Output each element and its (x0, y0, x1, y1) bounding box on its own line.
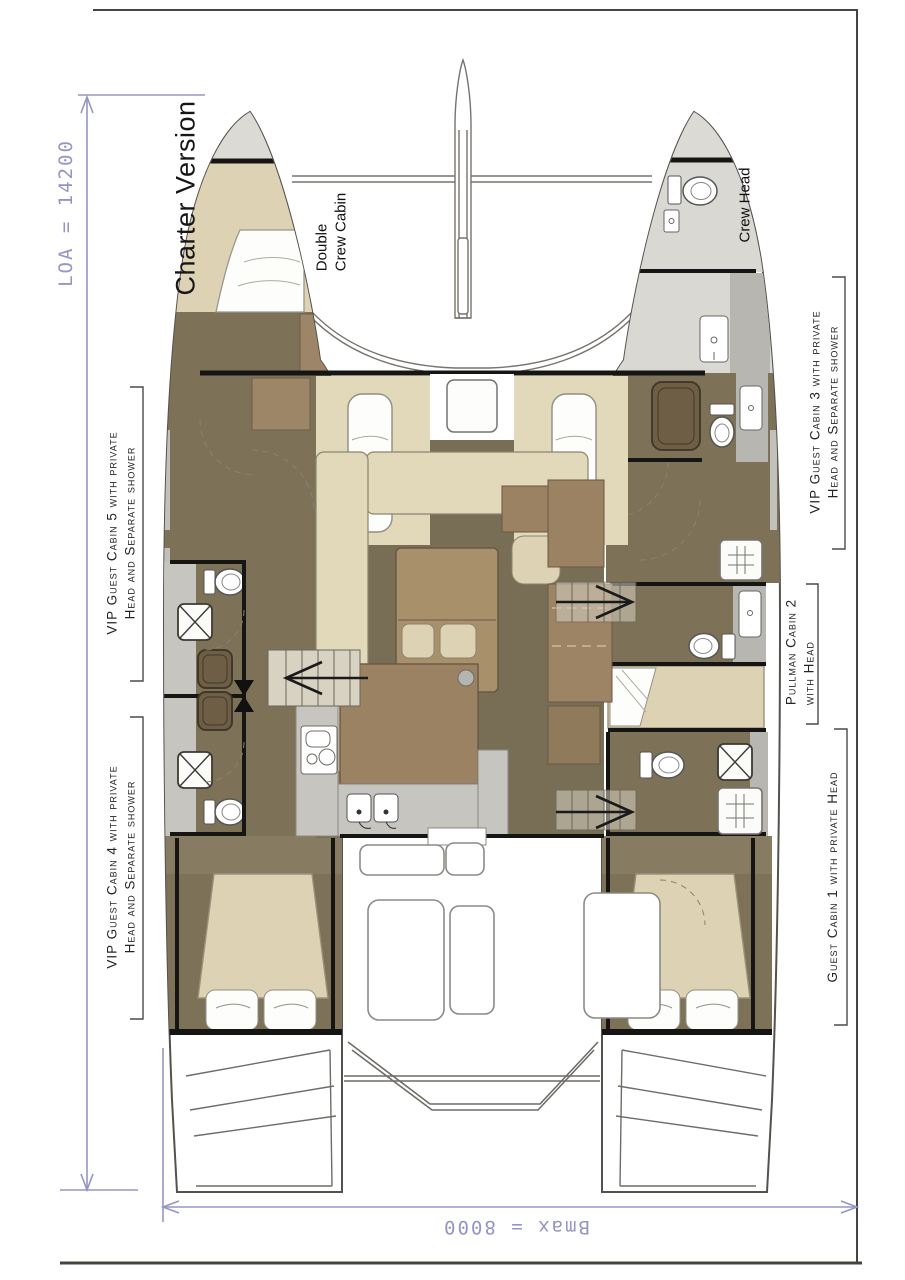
label-cabin-2: Pullman Cabin 2 with Head (782, 599, 817, 705)
galley-fixture (458, 670, 474, 686)
loa-dimension-label: LOA = 14200 (55, 139, 77, 287)
cockpit-bench (450, 906, 494, 1014)
galley-island (340, 664, 478, 784)
cockpit-seat (446, 843, 484, 875)
label-line: Double (313, 193, 332, 271)
cushion (440, 624, 476, 658)
label-cabin-3: VIP Guest Cabin 3 with private Head and … (806, 310, 841, 513)
cabin2-pullman-bed (608, 664, 766, 730)
pillow (264, 990, 316, 1030)
label-line: VIP Guest Cabin 4 with private (103, 765, 121, 968)
label-line: Head and Separate shower (121, 765, 139, 968)
shower-tray-icon (652, 382, 700, 450)
label-line: Pullman Cabin 2 (782, 599, 800, 705)
toilet-icon (204, 570, 215, 594)
toilet-icon (668, 176, 717, 205)
sink-icon (664, 210, 679, 232)
crew-head-floor (594, 160, 784, 272)
label-line: VIP Guest Cabin 3 with private (806, 310, 824, 513)
label-line: with Head (800, 599, 818, 705)
right-hull (594, 108, 784, 1192)
cockpit-seat (360, 845, 444, 875)
stairs-right-aft (556, 790, 636, 830)
cushion (402, 624, 434, 658)
cabin5-cabinet (252, 378, 310, 430)
salon (268, 374, 636, 845)
label-double-crew-cabin: Double Crew Cabin (313, 193, 351, 271)
bowsprit-beam (455, 60, 471, 318)
toilet-icon (710, 404, 734, 415)
toilet-icon (204, 800, 215, 824)
bridle-lines (300, 298, 644, 374)
cabinet (502, 486, 548, 532)
pillow (686, 990, 738, 1030)
foredeck-hatch-icon (447, 380, 497, 432)
shower-icon (178, 604, 212, 640)
pillow (206, 990, 258, 1030)
cockpit-aft-edge (344, 1042, 600, 1110)
cabin4-bed (198, 874, 328, 998)
label-cabin-4: VIP Guest Cabin 4 with private Head and … (103, 765, 138, 968)
label-line: VIP Guest Cabin 5 with private (103, 431, 121, 634)
right-bow-locker (594, 108, 784, 160)
shower-icon (718, 744, 752, 780)
boat-plan-svg (0, 0, 905, 1280)
bmax-dimension-label: Bmax = 8000 (442, 1216, 590, 1238)
cabinet (548, 706, 600, 764)
stairs-left (268, 650, 368, 706)
label-line: Crew Cabin (332, 193, 351, 271)
toilet-icon (640, 752, 652, 778)
shower-icon (178, 752, 212, 788)
label-line: Head and Separate shower (824, 310, 842, 513)
stairs-right-forward (556, 582, 636, 622)
stove-icon (301, 726, 337, 774)
sink-icon (739, 591, 761, 637)
label-cabin-5: VIP Guest Cabin 5 with private Head and … (103, 431, 138, 634)
label-cabin-1: Guest Cabin 1 with private Head (824, 772, 842, 983)
cabinet (548, 480, 604, 567)
drawing-title: Charter Version (171, 100, 202, 295)
label-crew-head: Crew Head (737, 167, 756, 242)
label-line: Head and Separate shower (121, 431, 139, 634)
cabin3-head (604, 373, 780, 462)
sink-icon (740, 386, 762, 430)
toilet-icon (722, 634, 735, 659)
galley-step (478, 750, 508, 836)
cockpit-table (368, 900, 444, 1020)
drawing-sheet: Charter Version LOA = 14200 Bmax = 8000 … (0, 0, 905, 1280)
cockpit-bench-right (584, 893, 660, 1018)
